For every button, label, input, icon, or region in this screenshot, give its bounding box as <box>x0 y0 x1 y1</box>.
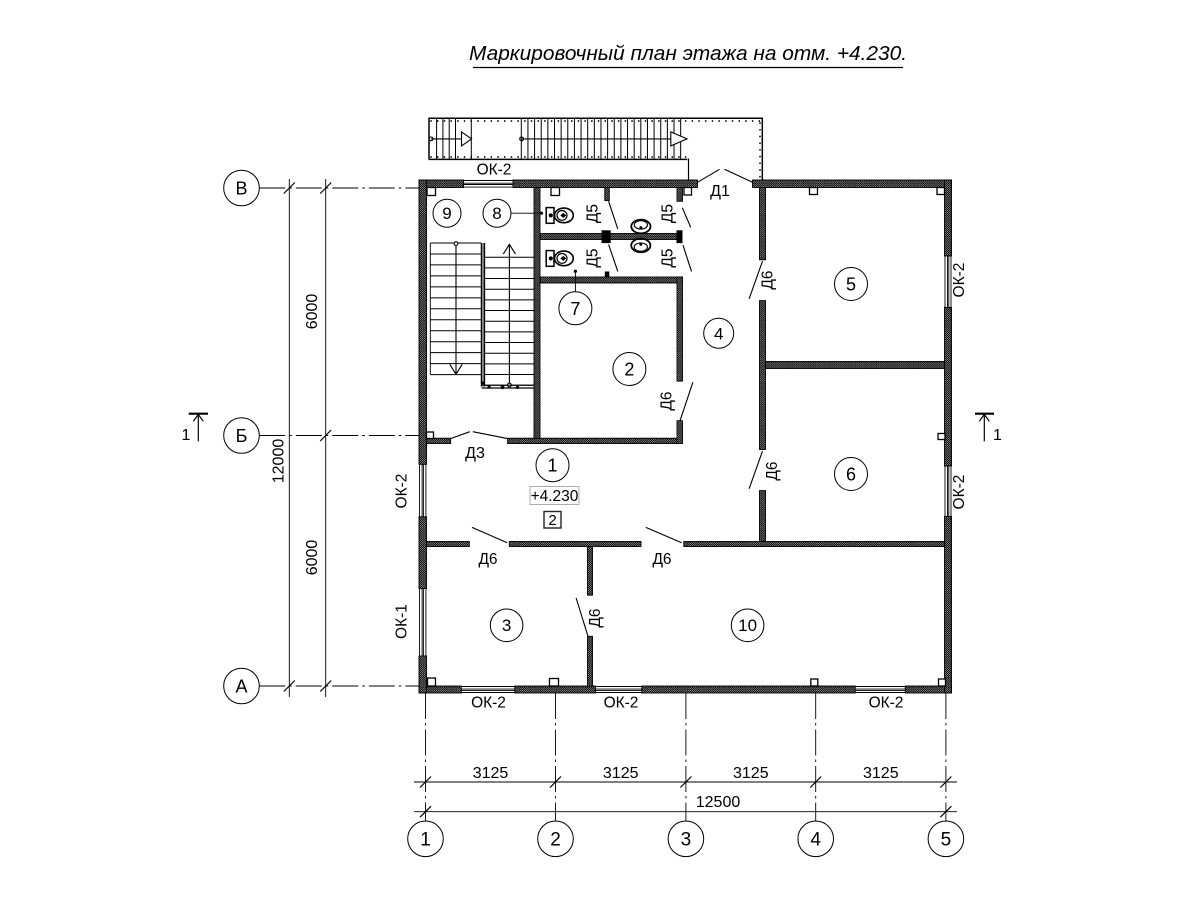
svg-text:ОК-2: ОК-2 <box>394 474 411 509</box>
svg-text:8: 8 <box>492 204 501 223</box>
svg-text:ОК-2: ОК-2 <box>477 162 512 179</box>
svg-text:2: 2 <box>548 512 556 529</box>
svg-text:Д6: Д6 <box>659 391 676 410</box>
svg-text:ОК-2: ОК-2 <box>951 263 968 298</box>
svg-text:3125: 3125 <box>603 765 639 782</box>
svg-text:4: 4 <box>714 325 723 344</box>
svg-text:12500: 12500 <box>696 794 741 811</box>
svg-text:Д6: Д6 <box>478 551 497 568</box>
svg-text:ОК-2: ОК-2 <box>951 475 968 510</box>
svg-text:Д3: Д3 <box>465 445 485 462</box>
svg-text:5: 5 <box>941 830 952 851</box>
svg-text:6000: 6000 <box>304 540 321 576</box>
svg-text:4: 4 <box>810 830 821 851</box>
svg-text:ОК-2: ОК-2 <box>604 695 639 712</box>
svg-text:В: В <box>235 178 247 198</box>
svg-text:7: 7 <box>570 299 580 319</box>
svg-text:3: 3 <box>681 830 692 851</box>
svg-text:Б: Б <box>236 426 248 446</box>
svg-text:+4.230: +4.230 <box>531 488 579 505</box>
svg-text:9: 9 <box>442 204 451 223</box>
svg-text:Маркировочный план этажа на от: Маркировочный план этажа на отм. +4.230. <box>469 43 907 65</box>
svg-text:6000: 6000 <box>304 294 321 330</box>
svg-text:10: 10 <box>738 616 757 635</box>
svg-text:Д1: Д1 <box>710 183 730 200</box>
svg-text:3125: 3125 <box>863 765 899 782</box>
svg-text:Д6: Д6 <box>652 551 671 568</box>
svg-text:2: 2 <box>550 830 561 851</box>
svg-text:1: 1 <box>182 427 191 444</box>
svg-text:3125: 3125 <box>473 765 509 782</box>
svg-text:1: 1 <box>547 456 557 476</box>
svg-text:1: 1 <box>993 427 1002 444</box>
svg-text:ОК-1: ОК-1 <box>394 604 411 639</box>
svg-text:Д5: Д5 <box>585 248 602 267</box>
svg-text:Д5: Д5 <box>660 248 677 267</box>
svg-text:2: 2 <box>624 360 634 380</box>
svg-text:3125: 3125 <box>733 765 769 782</box>
svg-text:Д6: Д6 <box>760 270 777 289</box>
svg-text:Д6: Д6 <box>587 608 604 627</box>
svg-text:1: 1 <box>420 830 431 851</box>
svg-text:3: 3 <box>502 616 511 635</box>
svg-text:6: 6 <box>846 465 856 485</box>
svg-text:12000: 12000 <box>271 439 288 484</box>
svg-text:ОК-2: ОК-2 <box>869 695 904 712</box>
svg-text:Д5: Д5 <box>660 204 677 223</box>
svg-text:Д6: Д6 <box>764 461 781 480</box>
svg-text:А: А <box>235 676 247 696</box>
svg-text:5: 5 <box>846 275 856 295</box>
svg-text:ОК-2: ОК-2 <box>471 695 506 712</box>
svg-text:Д5: Д5 <box>585 204 602 223</box>
